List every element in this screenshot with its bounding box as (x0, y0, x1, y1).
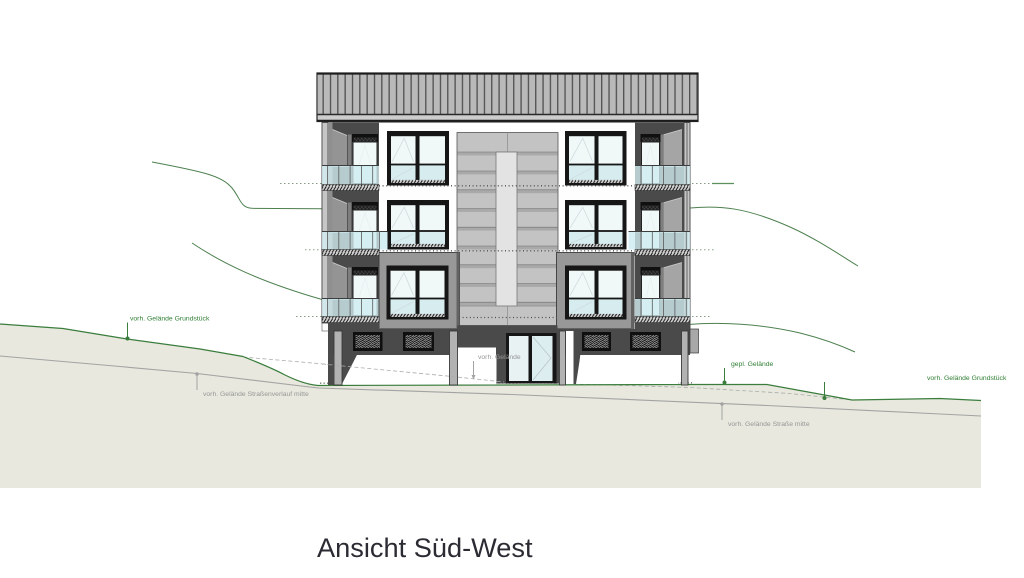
svg-text:vorh. Gelände Grundstück: vorh. Gelände Grundstück (130, 316, 210, 323)
svg-text:vorh. Gelände: vorh. Gelände (478, 354, 521, 361)
svg-text:vorh. Gelände Straßenverlauf m: vorh. Gelände Straßenverlauf mitte (203, 391, 309, 398)
svg-text:gepl. Gelände: gepl. Gelände (731, 361, 774, 368)
svg-text:Ansicht Süd-West: Ansicht Süd-West (317, 532, 533, 563)
svg-text:vorh. Gelände Straße mitte: vorh. Gelände Straße mitte (728, 421, 810, 428)
svg-text:vorh. Gelände Grundstück: vorh. Gelände Grundstück (927, 375, 1007, 382)
